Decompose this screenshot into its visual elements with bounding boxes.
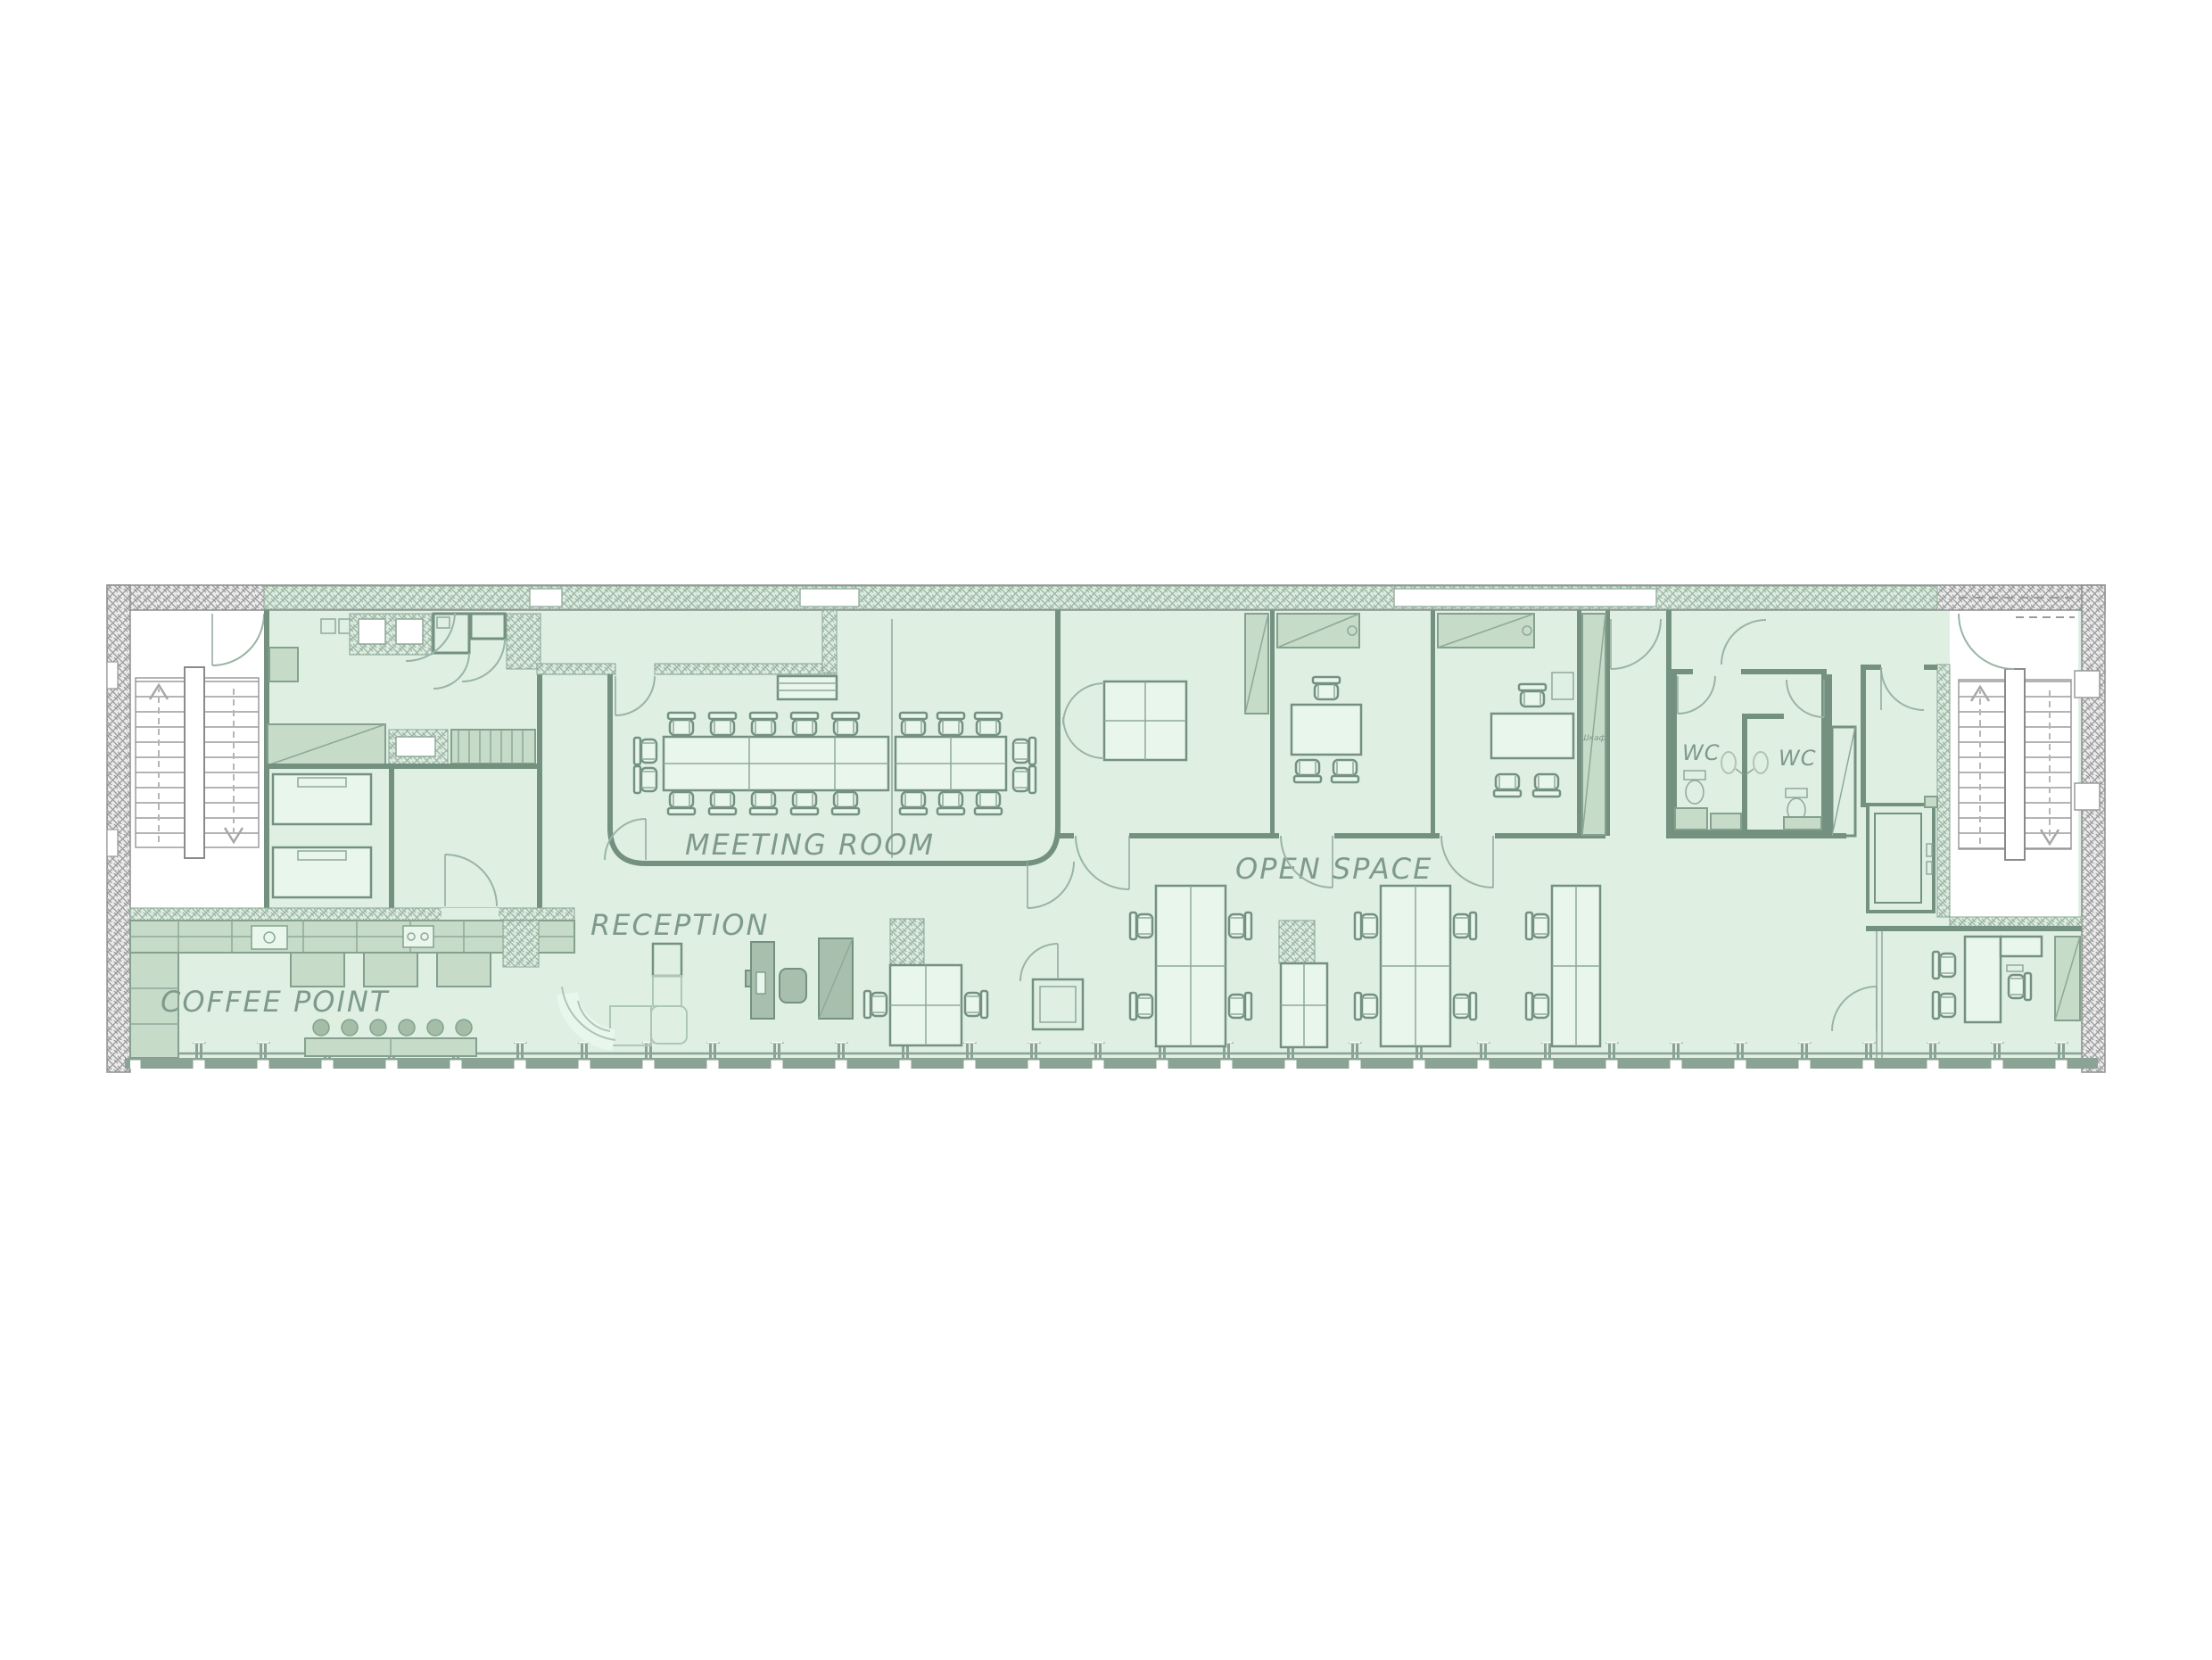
- floor-plan-canvas: MEETING ROOM COFFEE POINT RECEPTION: [0, 0, 2212, 1660]
- cabinet: [269, 648, 298, 681]
- window-recess: [107, 830, 118, 856]
- pillar: [890, 919, 924, 965]
- wc-label-1: WC: [1682, 740, 1721, 765]
- couch: [273, 847, 371, 897]
- reception-chair: [780, 969, 806, 1003]
- reception-label: RECEPTION: [590, 908, 769, 942]
- coffee-table: [364, 953, 417, 987]
- open-space-label: OPEN SPACE: [1235, 852, 1432, 886]
- coffee-point-label: COFFEE POINT: [161, 985, 390, 1019]
- monitor-icon: [756, 972, 765, 994]
- desk: [1292, 705, 1361, 755]
- window-recess: [107, 662, 118, 689]
- desk-return: [2001, 937, 2042, 956]
- sink-icon: [252, 926, 287, 949]
- coffee-table: [437, 953, 491, 987]
- vanity-cabinet: [1711, 813, 1741, 830]
- vanity-cabinet: [1784, 817, 1821, 830]
- credenza: [778, 676, 837, 699]
- desk: [1491, 714, 1573, 758]
- window-recess: [800, 589, 859, 607]
- window-recess: [1394, 589, 1656, 607]
- wall-niche: [2075, 671, 2100, 698]
- wardrobe-label: Шкаф: [1581, 734, 1606, 743]
- wall-niche: [2075, 783, 2100, 810]
- stair-stringer: [185, 667, 204, 858]
- pillar: [503, 921, 539, 967]
- window-recess: [530, 589, 562, 607]
- stair-stringer: [2005, 669, 2025, 860]
- meeting-room-label: MEETING ROOM: [685, 828, 935, 862]
- pillar: [1279, 921, 1315, 963]
- floor-plan-page: MEETING ROOM COFFEE POINT RECEPTION: [0, 0, 2212, 1660]
- desk-l-shape: [1965, 937, 2001, 1022]
- wc-label-2: WC: [1779, 746, 1817, 771]
- vanity-cabinet: [1675, 808, 1707, 830]
- coffee-table: [291, 953, 344, 987]
- couch: [273, 774, 371, 824]
- stair-left-wall: [1937, 665, 1950, 917]
